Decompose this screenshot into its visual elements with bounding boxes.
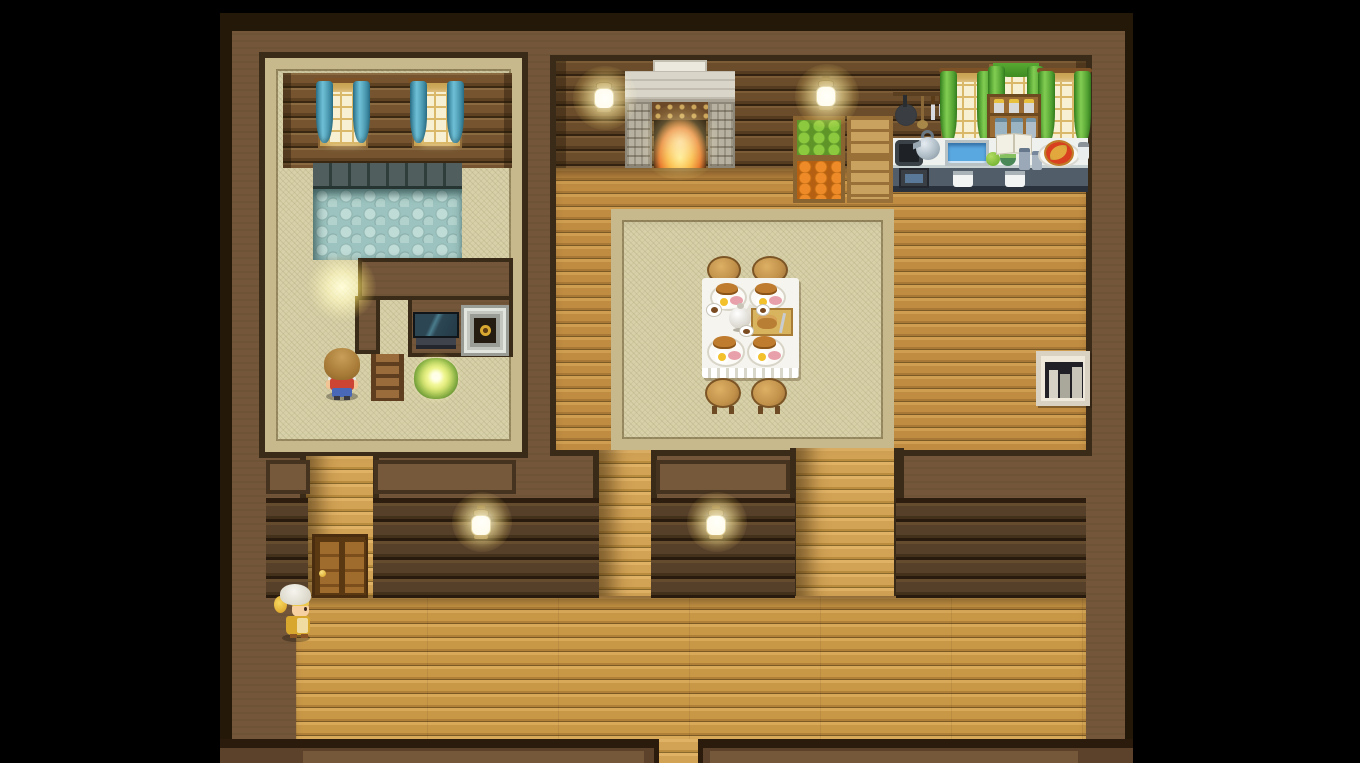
pizza-plate xyxy=(1038,138,1080,170)
sunflower-icon xyxy=(480,325,491,336)
wall-cap-panel xyxy=(374,460,516,494)
hall-wall-segment-a xyxy=(266,498,308,598)
pan-handle xyxy=(903,95,907,107)
chef-feet xyxy=(301,634,308,638)
plate-breakfast xyxy=(707,337,745,367)
south-wall-panel xyxy=(710,751,1078,763)
tv-stand xyxy=(416,338,456,349)
towel xyxy=(1005,171,1025,187)
crate-green-apples xyxy=(793,116,845,159)
dining-table[interactable] xyxy=(702,278,799,378)
hall-wall-segment-d xyxy=(896,498,1086,598)
pool-water[interactable] xyxy=(313,189,462,260)
blue-curtain-left xyxy=(316,81,333,143)
knife-icon xyxy=(931,96,935,120)
chef-hat xyxy=(280,584,311,605)
ladle-icon xyxy=(921,96,924,122)
rack-bar xyxy=(893,92,945,96)
game-viewport[interactable] xyxy=(220,0,1133,763)
book-spine xyxy=(1060,374,1070,398)
blue-curtain-left xyxy=(410,81,427,143)
door-leaf-left xyxy=(318,540,341,595)
teacup xyxy=(756,304,770,316)
tablecloth-ruffle xyxy=(702,368,799,378)
chef-eye xyxy=(304,607,307,611)
blue-window-1 xyxy=(318,80,368,148)
glowing-bush xyxy=(414,358,458,399)
towel xyxy=(953,171,973,187)
book-spine xyxy=(1049,370,1058,398)
south-exit[interactable] xyxy=(654,739,703,763)
fireplace-fire xyxy=(654,120,706,168)
fireplace xyxy=(625,56,735,168)
boy-hair xyxy=(324,348,360,380)
boy-feet xyxy=(344,396,350,400)
bread-loaf xyxy=(757,315,777,329)
bookshelf-interior xyxy=(1045,362,1083,398)
oven xyxy=(899,168,929,188)
kettle xyxy=(915,128,941,162)
plate-breakfast xyxy=(747,337,785,367)
south-wall-panel xyxy=(303,751,644,763)
teacup xyxy=(706,303,722,317)
knife-icon xyxy=(779,313,786,333)
chef-apron xyxy=(297,618,308,633)
crate-wood-top xyxy=(847,116,893,159)
boy-feet xyxy=(334,396,340,400)
oven-window xyxy=(905,174,923,183)
door-leaf-right xyxy=(343,540,366,595)
book-spine xyxy=(1072,367,1082,398)
stool-legs xyxy=(758,406,780,414)
book-page-left xyxy=(996,133,1014,155)
stool-bottom-right xyxy=(751,378,787,408)
stool-legs xyxy=(712,406,734,414)
framed-picture[interactable] xyxy=(461,305,509,356)
fireplace-column-left xyxy=(625,102,652,168)
bookshelf[interactable] xyxy=(1036,351,1090,406)
hall-passage-center[interactable] xyxy=(599,450,651,598)
crate-carrots xyxy=(793,157,845,203)
wall-cap-panel xyxy=(266,460,310,494)
door-knob-icon xyxy=(319,570,326,577)
pool-stone-edge xyxy=(313,163,462,189)
sink xyxy=(945,140,989,166)
inner-wall-band xyxy=(358,258,513,300)
wooden-stairs[interactable] xyxy=(371,354,404,401)
gray-jar-icon xyxy=(1019,148,1030,170)
double-door[interactable] xyxy=(312,534,368,598)
character-chef-girl[interactable] xyxy=(274,584,316,644)
crate-wood-bottom xyxy=(847,157,893,203)
game-screenshot xyxy=(0,0,1360,763)
green-curtain-right xyxy=(1074,71,1091,145)
hallway-floor xyxy=(296,596,1086,739)
character-boy-red-shirt[interactable] xyxy=(322,346,362,402)
blue-window-2 xyxy=(412,80,462,148)
fireplace-mantle xyxy=(625,71,735,102)
hall-passage-right[interactable] xyxy=(796,448,894,598)
fireplace-column-right xyxy=(708,102,735,168)
blue-curtain-right xyxy=(447,81,464,143)
pizza-icon xyxy=(1044,140,1074,166)
teacup xyxy=(739,325,754,337)
wall-cap-panel xyxy=(656,460,790,494)
hall-wall-segment-b xyxy=(373,498,599,598)
tv[interactable] xyxy=(413,312,459,349)
stool-bottom-left xyxy=(705,378,741,408)
tv-screen xyxy=(413,312,459,338)
hall-wall-segment-c xyxy=(651,498,795,598)
fireplace-lintel xyxy=(652,102,708,120)
green-curtain-left xyxy=(940,71,957,145)
salt-shaker-icon xyxy=(1078,142,1089,160)
chef-feet xyxy=(290,634,297,638)
shelf-board xyxy=(990,113,1038,116)
blue-curtain-right xyxy=(353,81,370,143)
frying-pan-icon xyxy=(895,104,917,126)
